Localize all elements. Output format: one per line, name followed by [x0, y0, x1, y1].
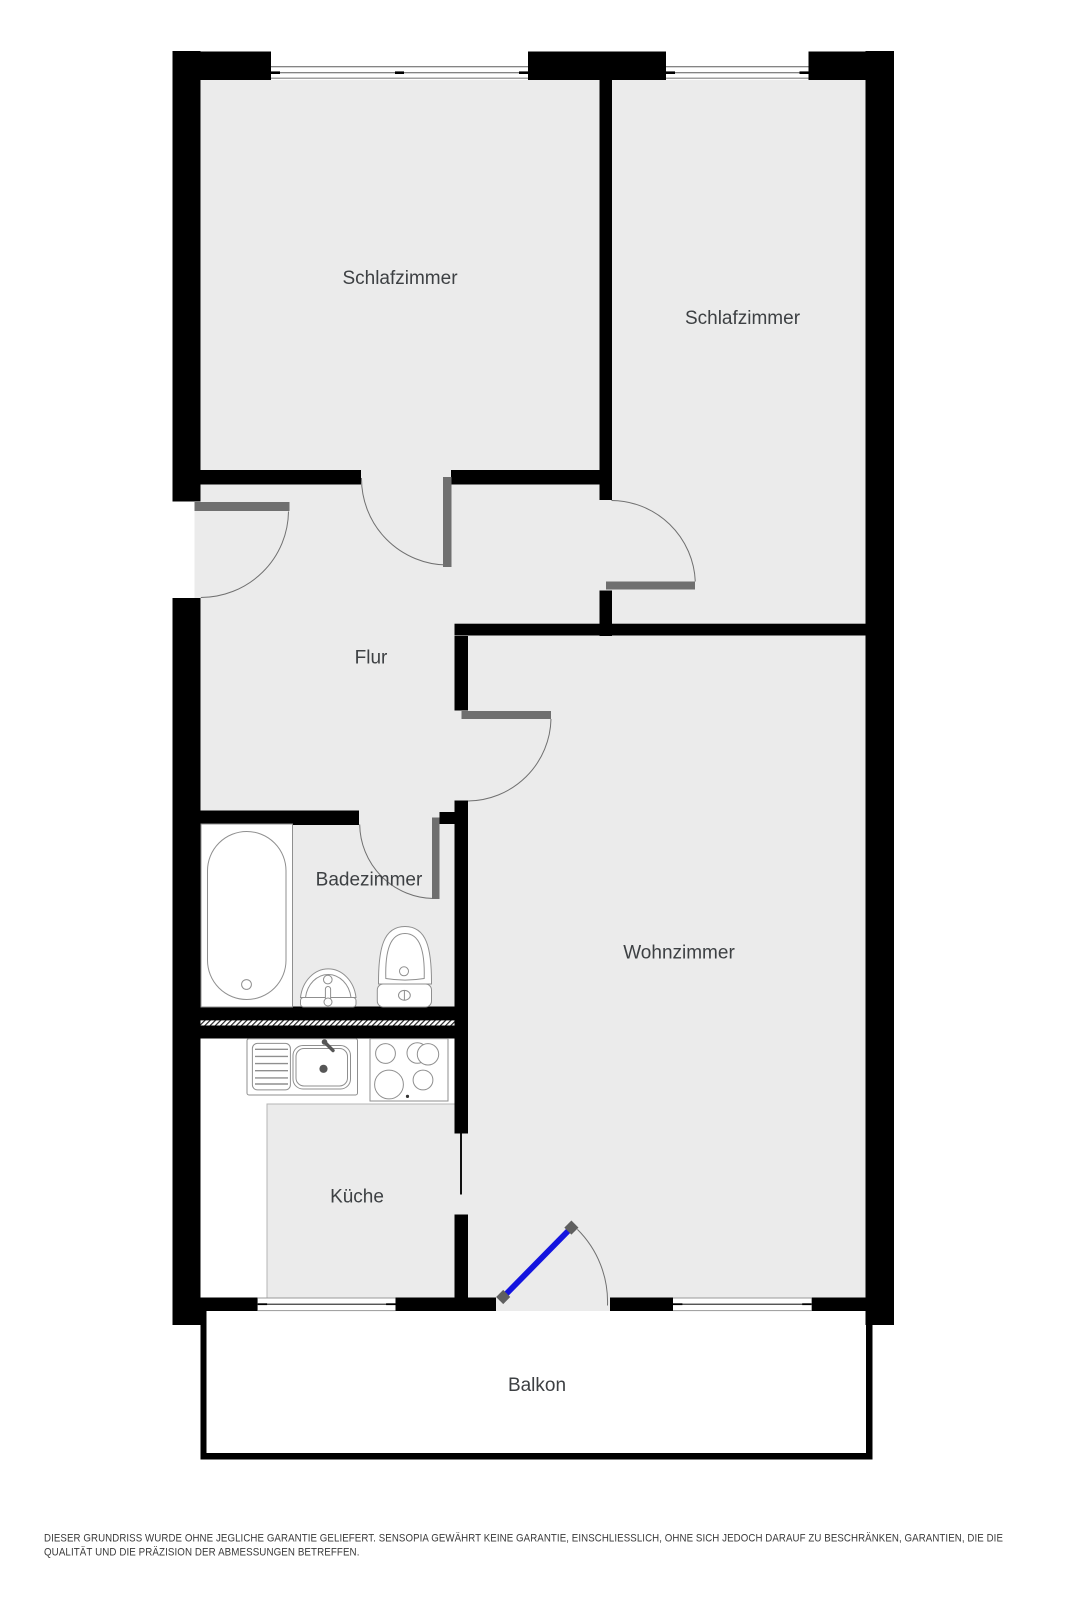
svg-text:Badezimmer: Badezimmer	[316, 870, 423, 891]
svg-text:Balkon: Balkon	[508, 1375, 566, 1396]
svg-text:DIESER GRUNDRISS WURDE OHNE JE: DIESER GRUNDRISS WURDE OHNE JEGLICHE GAR…	[44, 1532, 1003, 1544]
svg-text:Schlafzimmer: Schlafzimmer	[342, 268, 458, 289]
svg-text:Wohnzimmer: Wohnzimmer	[623, 943, 735, 964]
svg-text:Schlafzimmer: Schlafzimmer	[685, 308, 801, 329]
svg-text:Flur: Flur	[355, 647, 388, 668]
svg-text:QUALITÄT UND DIE PRÄZISION DER: QUALITÄT UND DIE PRÄZISION DER ABMESSUNG…	[44, 1547, 360, 1559]
svg-text:Küche: Küche	[330, 1186, 384, 1207]
